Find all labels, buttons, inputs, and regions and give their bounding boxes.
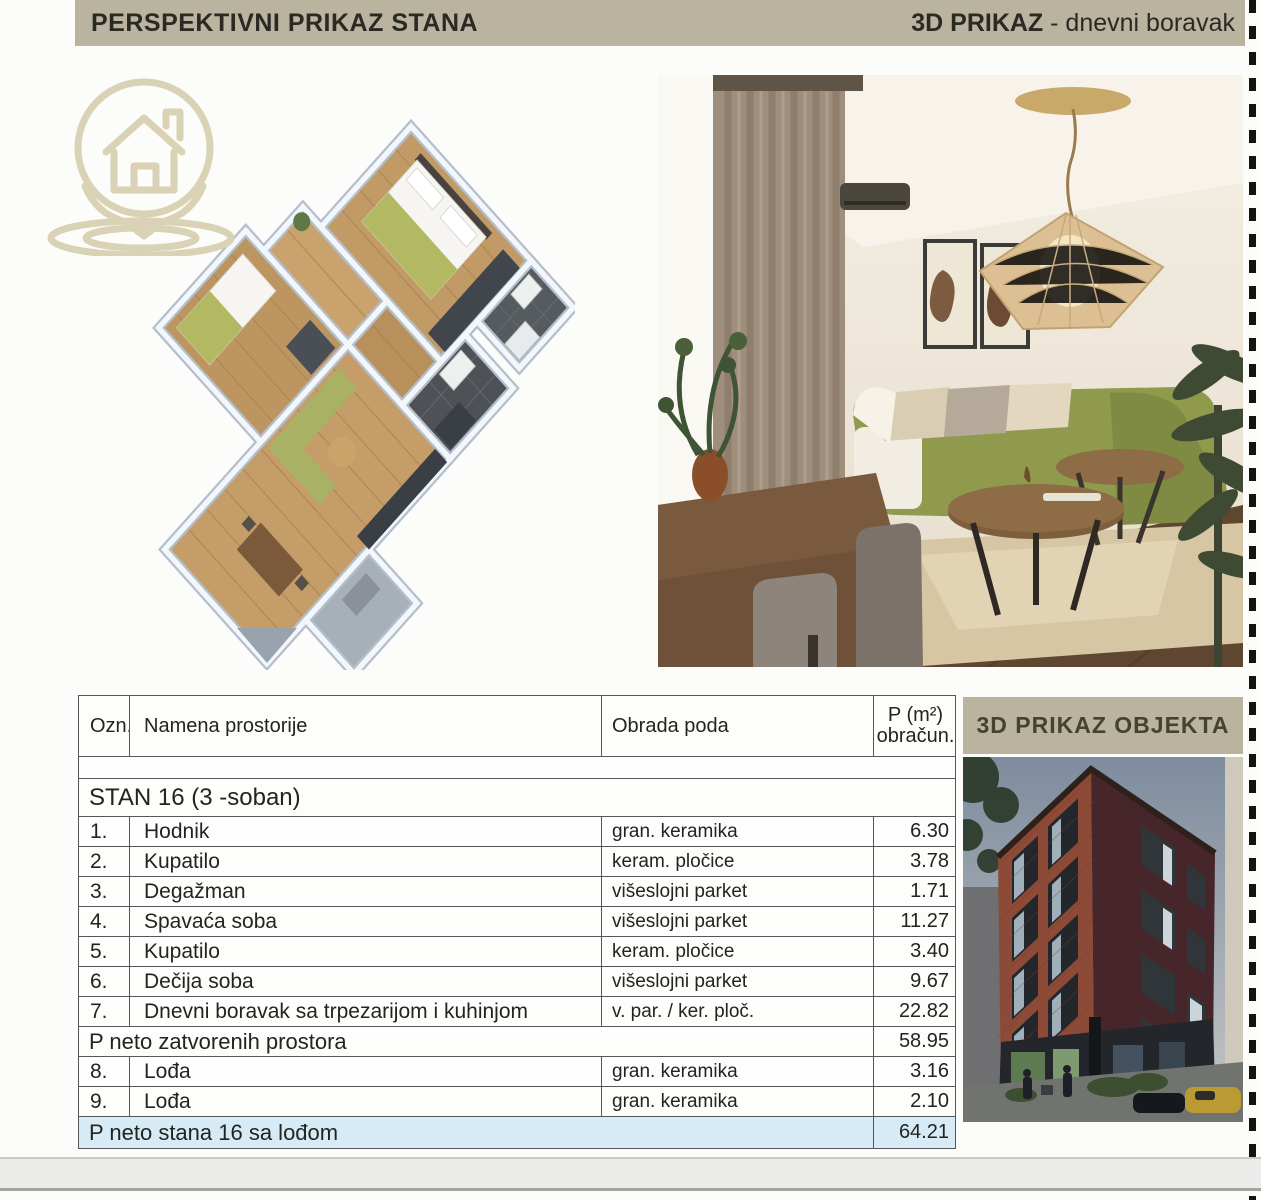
table-header-row: Ozn. Namena prostorije Obrada poda P (m²… — [79, 696, 955, 757]
row-area: 3.40 — [873, 937, 957, 966]
table-row: 7. Dnevni boravak sa trpezarijom i kuhin… — [79, 997, 955, 1027]
table-row: 2. Kupatilo keram. pločice 3.78 — [79, 847, 955, 877]
row-floor: gran. keramika — [601, 817, 873, 846]
table-row: 8. Lođa gran. keramika 3.16 — [79, 1057, 955, 1087]
subtotal-row: P neto zatvorenih prostora 58.95 — [79, 1027, 955, 1057]
row-ozn: 5. — [79, 937, 129, 966]
row-floor: višeslojni parket — [601, 967, 873, 996]
total-area: 64.21 — [873, 1117, 957, 1148]
background-building — [963, 887, 1001, 1097]
row-name: Spavaća soba — [129, 907, 601, 936]
col-header-area-line1: P (m²) — [888, 705, 943, 726]
row-ozn: 8. — [79, 1057, 129, 1086]
row-ozn: 9. — [79, 1087, 129, 1116]
row-ozn: 6. — [79, 967, 129, 996]
row-ozn: 7. — [79, 997, 129, 1026]
air-conditioner — [840, 183, 910, 210]
row-area: 9.67 — [873, 967, 957, 996]
row-name: Kupatilo — [129, 937, 601, 966]
row-floor: keram. pločice — [601, 847, 873, 876]
row-ozn: 4. — [79, 907, 129, 936]
row-area: 1.71 — [873, 877, 957, 906]
building-panel-title: 3D PRIKAZ OBJEKTA — [963, 697, 1243, 754]
area-table: Ozn. Namena prostorije Obrada poda P (m²… — [78, 695, 956, 1149]
subtotal-area: 58.95 — [873, 1027, 957, 1056]
row-floor: v. par. / ker. ploč. — [601, 997, 873, 1026]
row-ozn: 2. — [79, 847, 129, 876]
row-ozn: 1. — [79, 817, 129, 846]
total-label: P neto stana 16 sa lođom — [79, 1117, 873, 1148]
row-name: Lođa — [129, 1087, 601, 1116]
building-photo — [963, 757, 1243, 1122]
row-floor: keram. pločice — [601, 937, 873, 966]
row-name: Hodnik — [129, 817, 601, 846]
row-floor: gran. keramika — [601, 1087, 873, 1116]
row-name: Lođa — [129, 1057, 601, 1086]
table-row: 5. Kupatilo keram. pločice 3.40 — [79, 937, 955, 967]
row-area: 2.10 — [873, 1087, 957, 1116]
row-name: Dnevni boravak sa trpezarijom i kuhinjom — [129, 997, 601, 1026]
row-ozn: 3. — [79, 877, 129, 906]
row-floor: višeslojni parket — [601, 877, 873, 906]
subtotal-label: P neto zatvorenih prostora — [79, 1027, 873, 1056]
table-group-row: STAN 16 (3 -soban) — [79, 779, 955, 817]
page-edge-dashed-line — [1249, 0, 1256, 1200]
row-area: 3.78 — [873, 847, 957, 876]
row-floor: višeslojni parket — [601, 907, 873, 936]
row-area: 3.16 — [873, 1057, 957, 1086]
col-header-ozn: Ozn. — [79, 696, 129, 756]
page-title-right: 3D PRIKAZ - dnevni boravak — [911, 9, 1235, 38]
living-room-photo — [658, 75, 1243, 667]
row-name: Kupatilo — [129, 847, 601, 876]
page: PERSPEKTIVNI PRIKAZ STANA 3D PRIKAZ - dn… — [0, 0, 1261, 1200]
row-area: 11.27 — [873, 907, 957, 936]
header-band: PERSPEKTIVNI PRIKAZ STANA 3D PRIKAZ - dn… — [75, 0, 1245, 46]
table-row: 9. Lođa gran. keramika 2.10 — [79, 1087, 955, 1117]
row-floor: gran. keramika — [601, 1057, 873, 1086]
page-bottom-strip — [0, 1157, 1261, 1191]
row-name: Degažman — [129, 877, 601, 906]
col-header-area: P (m²) obračun. — [873, 696, 957, 756]
table-row: 4. Spavaća soba višeslojni parket 11.27 — [79, 907, 955, 937]
row-area: 22.82 — [873, 997, 957, 1026]
house-pin-logo-icon — [36, 56, 246, 256]
page-title-right-bold: 3D PRIKAZ — [911, 9, 1043, 37]
dining-set — [658, 473, 923, 667]
row-name: Dečija soba — [129, 967, 601, 996]
col-header-floor: Obrada poda — [601, 696, 873, 756]
total-row: P neto stana 16 sa lođom 64.21 — [79, 1117, 955, 1148]
row-area: 6.30 — [873, 817, 957, 846]
col-header-name: Namena prostorije — [129, 696, 601, 756]
group-title: STAN 16 (3 -soban) — [79, 779, 873, 816]
table-spacer-row — [79, 757, 955, 779]
table-row: 3. Degažman višeslojni parket 1.71 — [79, 877, 955, 907]
table-row: 6. Dečija soba višeslojni parket 9.67 — [79, 967, 955, 997]
col-header-area-line2: obračun. — [877, 726, 955, 747]
page-title-left: PERSPEKTIVNI PRIKAZ STANA — [91, 9, 478, 38]
page-title-right-rest: - dnevni boravak — [1043, 9, 1235, 37]
table-row: 1. Hodnik gran. keramika 6.30 — [79, 817, 955, 847]
